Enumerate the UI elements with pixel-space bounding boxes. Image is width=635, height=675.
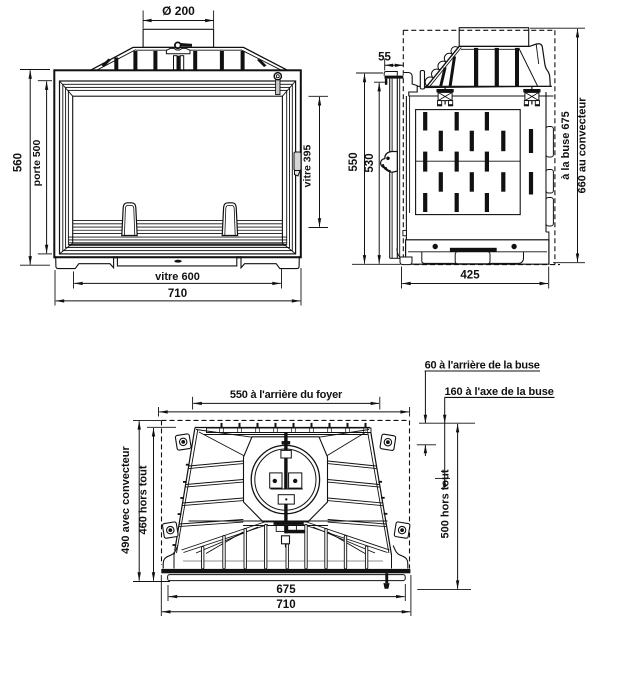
svg-text:710: 710 [168, 288, 187, 300]
svg-text:500 hors tout: 500 hors tout [440, 469, 452, 538]
svg-text:porte 500: porte 500 [31, 139, 43, 186]
svg-text:550 à l'arrière du foyer: 550 à l'arrière du foyer [230, 389, 343, 401]
svg-text:675: 675 [276, 584, 296, 596]
svg-text:490 avec convecteur: 490 avec convecteur [120, 445, 132, 553]
svg-text:60 à l'arrière de la buse: 60 à l'arrière de la buse [425, 359, 540, 371]
svg-text:460 hors tout: 460 hors tout [137, 465, 149, 534]
svg-text:160 à l'axe de la buse: 160 à l'axe de la buse [445, 386, 554, 398]
svg-text:vitre 600: vitre 600 [155, 271, 200, 283]
svg-text:550: 550 [348, 152, 360, 171]
svg-text:Ø 200: Ø 200 [162, 4, 195, 18]
svg-text:à la buse 675: à la buse 675 [560, 111, 572, 180]
svg-text:560: 560 [13, 153, 25, 172]
svg-text:710: 710 [276, 599, 295, 611]
svg-text:530: 530 [364, 153, 376, 172]
svg-text:vitre 395: vitre 395 [301, 145, 313, 188]
svg-text:660 au convecteur: 660 au convecteur [577, 97, 589, 194]
svg-text:425: 425 [460, 270, 480, 282]
svg-text:55: 55 [378, 52, 391, 64]
